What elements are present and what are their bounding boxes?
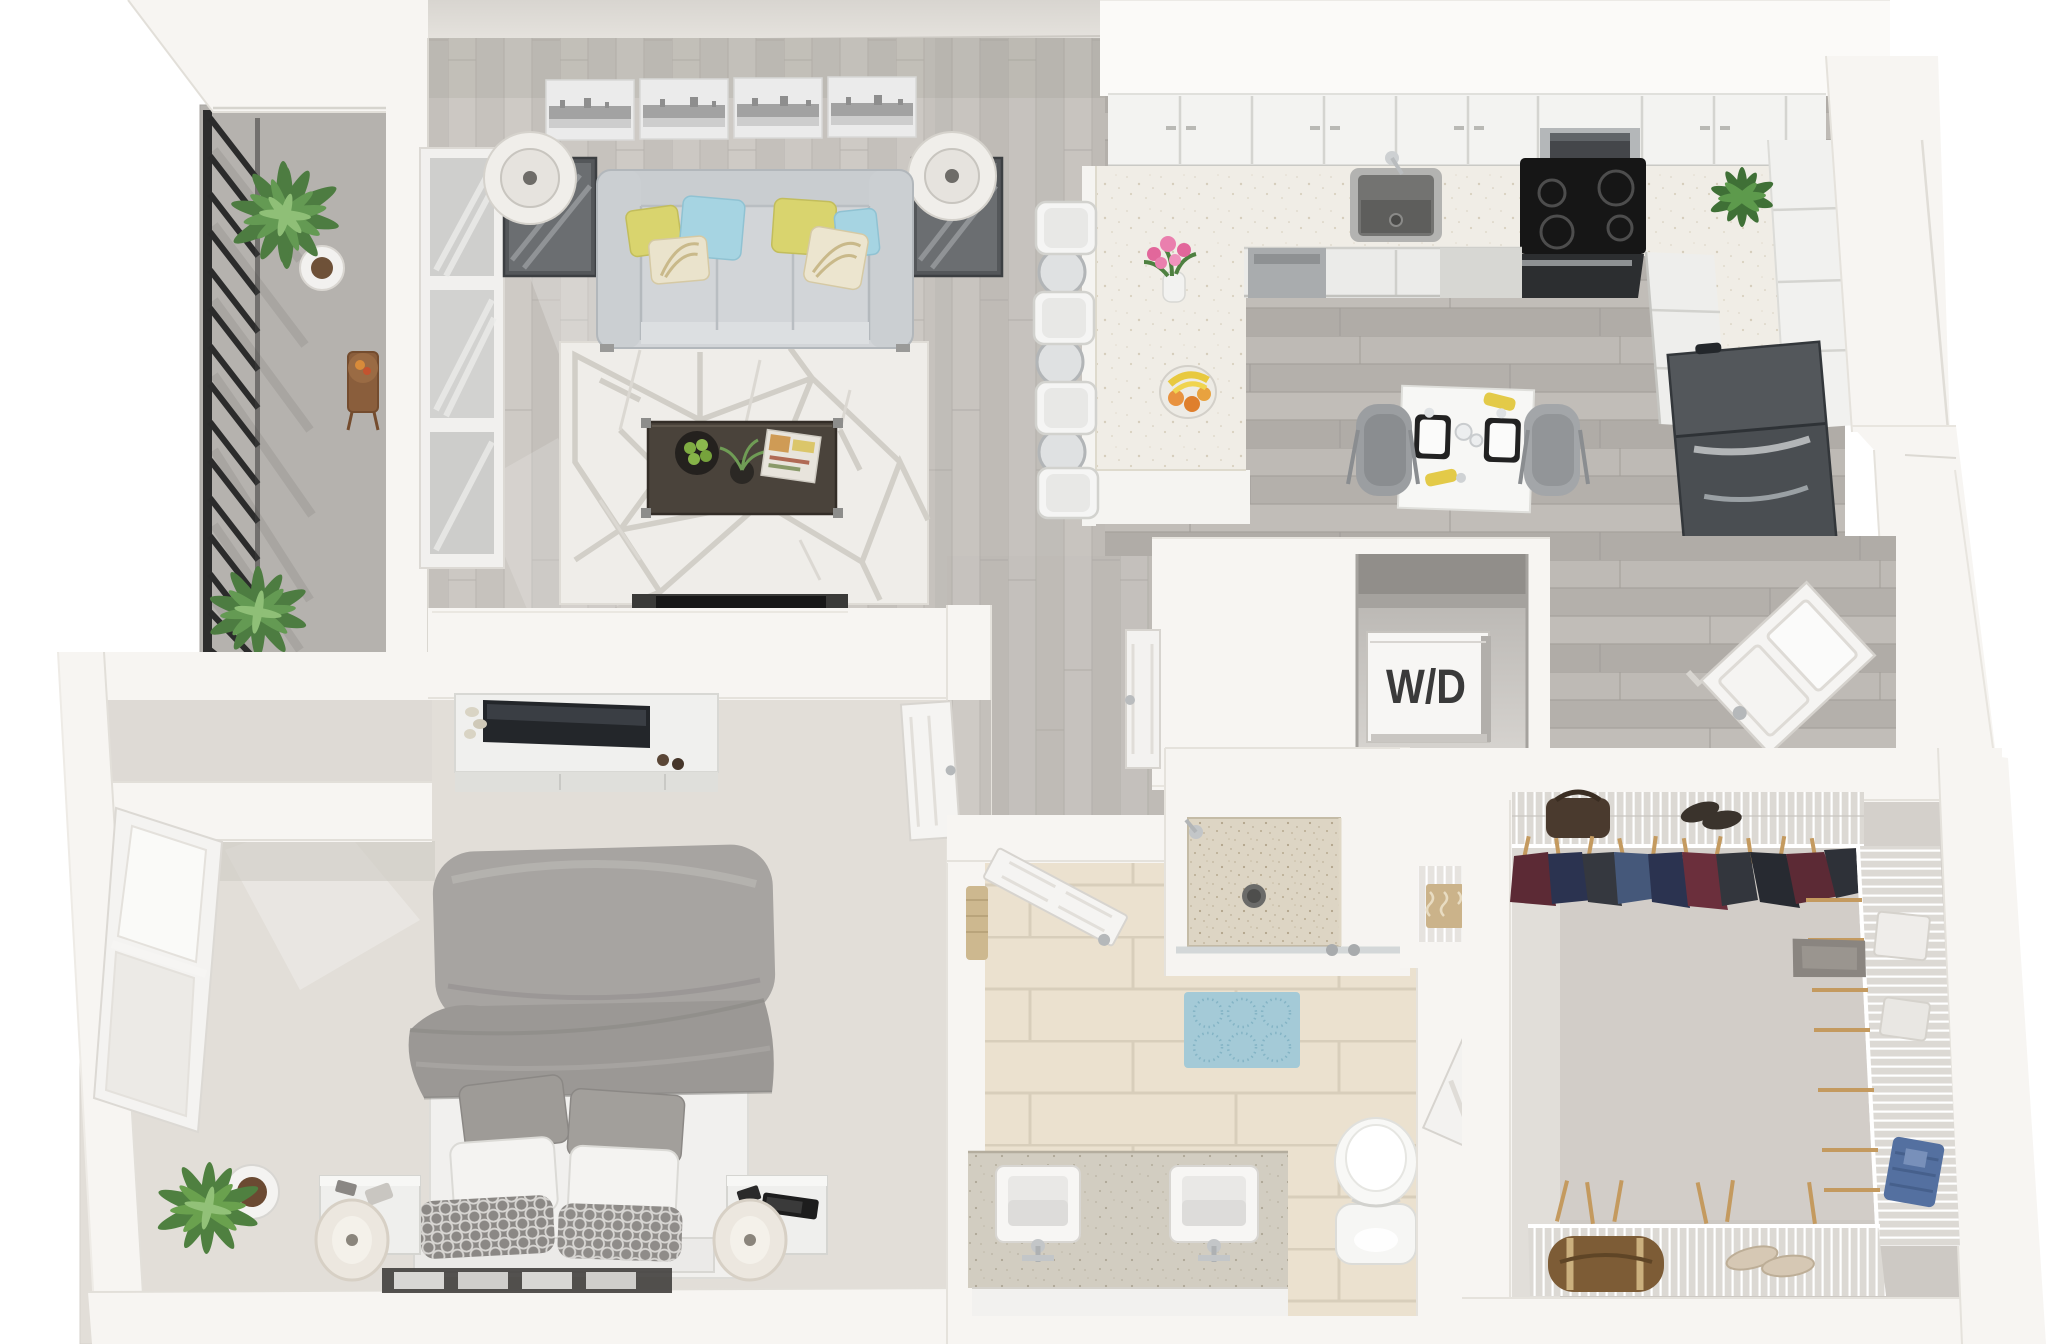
svg-text:W/D: W/D [1386, 661, 1466, 714]
